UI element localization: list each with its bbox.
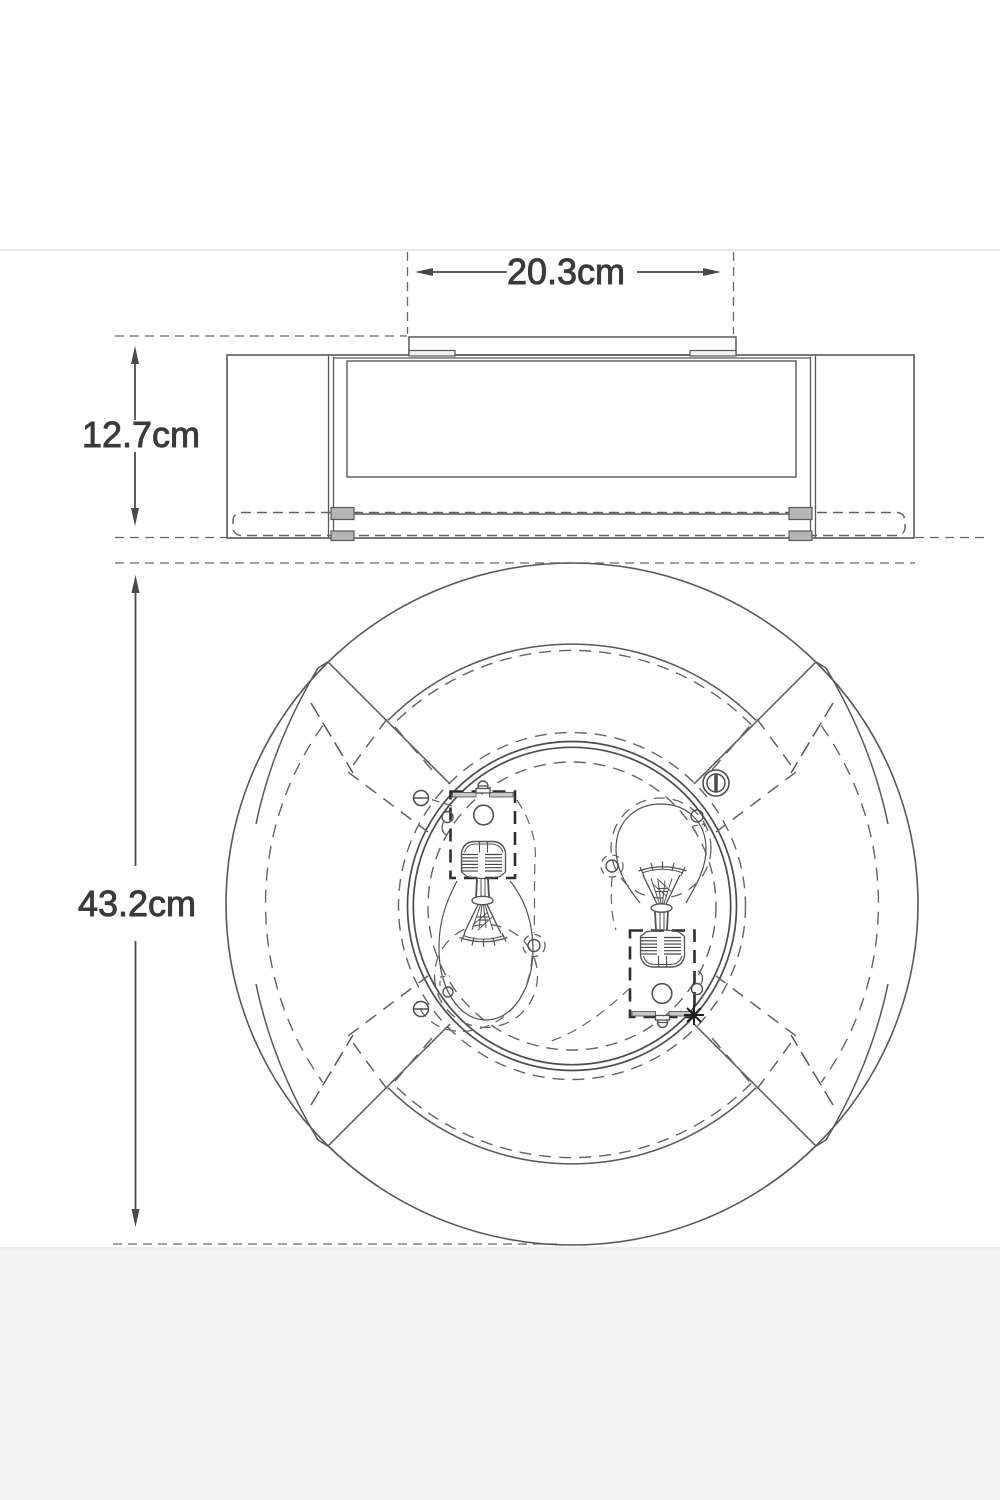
svg-text:20.3cm: 20.3cm	[507, 251, 625, 292]
svg-text:12.7cm: 12.7cm	[82, 414, 200, 455]
svg-text:43.2cm: 43.2cm	[78, 883, 196, 924]
